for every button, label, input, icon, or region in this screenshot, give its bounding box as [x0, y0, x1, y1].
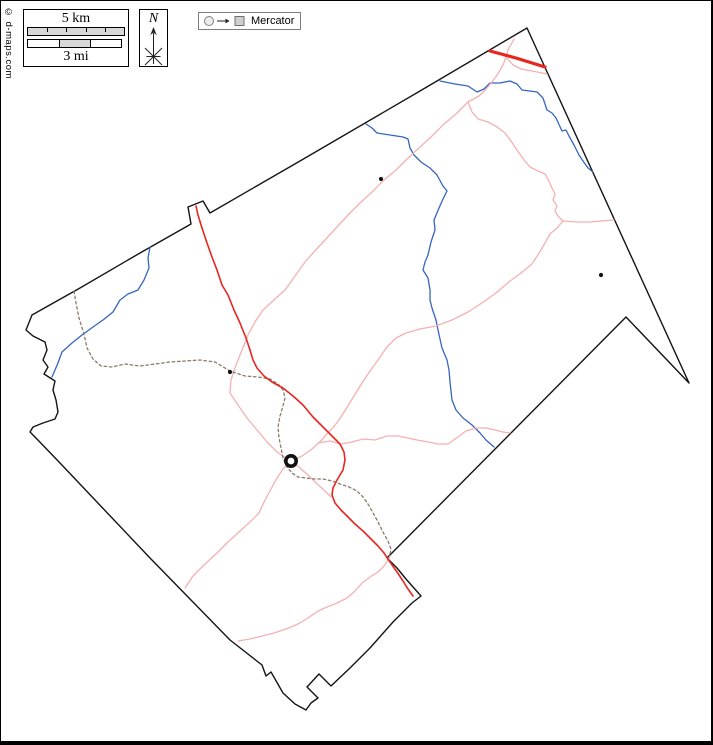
- scale-km-label: 5 km: [24, 10, 128, 27]
- attribution-text: © d-maps.com: [3, 7, 14, 79]
- scale-tick: [66, 28, 67, 32]
- scale-tick: [59, 40, 60, 47]
- scale-tick: [90, 40, 91, 47]
- scale-tick: [47, 28, 48, 32]
- compass-label: N: [140, 11, 167, 26]
- settlement-dot: [599, 273, 603, 277]
- settlement-dot: [379, 177, 383, 181]
- projection-arrow-icon: [217, 19, 230, 24]
- projection-badge: Mercator: [198, 12, 301, 30]
- projection-label: Mercator: [251, 13, 294, 29]
- county-boundary: [26, 28, 689, 710]
- scale-tick: [86, 28, 87, 32]
- county-seat-marker: [286, 456, 296, 466]
- scale-mi-label: 3 mi: [24, 48, 128, 65]
- compass: N: [139, 9, 168, 67]
- map-page: © d-maps.com 5 km 3 mi N: [0, 0, 713, 745]
- scale-km-bar: [27, 27, 125, 36]
- settlement-dot: [228, 370, 232, 374]
- projection-circle-icon: [205, 17, 214, 26]
- scale-mi-segment: [59, 40, 90, 47]
- projection-square-icon: [235, 17, 244, 26]
- scale-bar: 5 km 3 mi: [23, 9, 129, 67]
- compass-rose-icon: [140, 26, 167, 66]
- scale-tick: [105, 28, 106, 32]
- projection-icons: [203, 15, 247, 27]
- county-map: [0, 0, 713, 745]
- scale-mi-bar: [27, 39, 122, 48]
